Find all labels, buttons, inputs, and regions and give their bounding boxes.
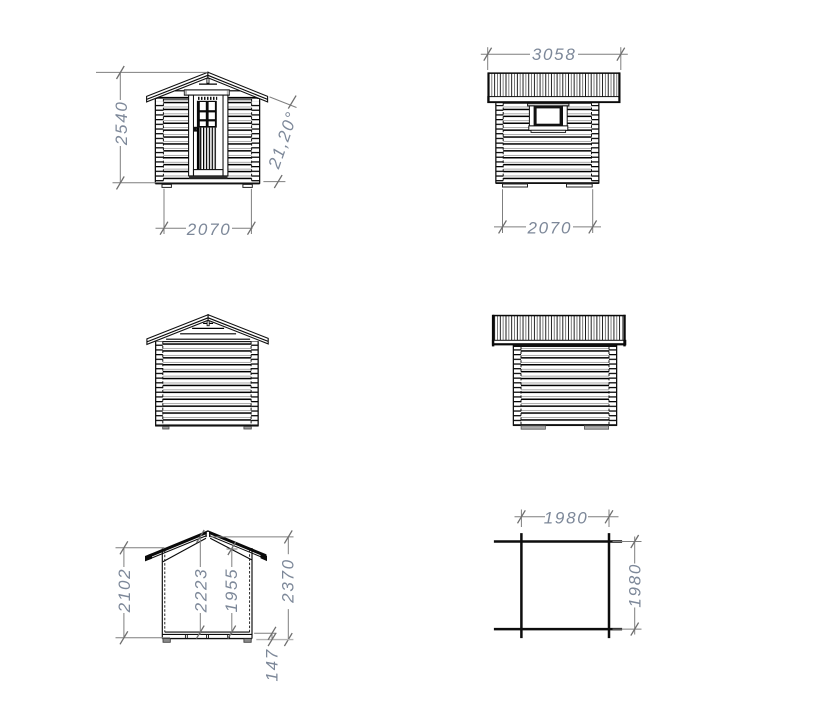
svg-text:1980: 1980: [544, 509, 589, 528]
svg-text:2223: 2223: [191, 568, 210, 614]
svg-text:2102: 2102: [115, 568, 134, 614]
svg-text:3058: 3058: [532, 45, 577, 64]
svg-text:1980: 1980: [626, 563, 645, 608]
svg-text:147: 147: [262, 648, 281, 681]
svg-text:2070: 2070: [186, 220, 232, 239]
svg-text:2540: 2540: [112, 100, 131, 146]
svg-text:2070: 2070: [526, 219, 572, 238]
svg-text:2370: 2370: [279, 558, 298, 604]
svg-text:1955: 1955: [222, 568, 241, 613]
